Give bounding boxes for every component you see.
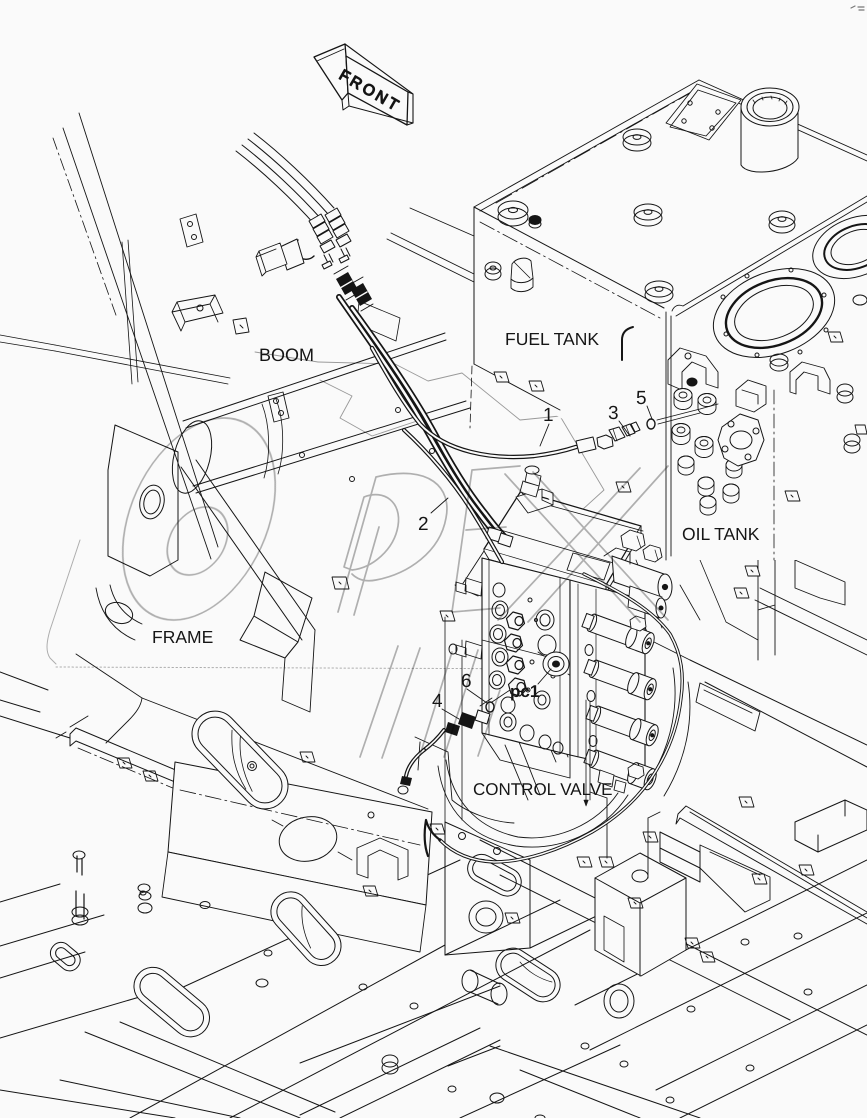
svg-text:4: 4 — [432, 691, 443, 712]
svg-text:1: 1 — [543, 405, 554, 426]
svg-text:pc1: pc1 — [510, 682, 539, 701]
svg-text:CONTROL VALVE: CONTROL VALVE — [473, 780, 613, 799]
svg-text:FRAME: FRAME — [152, 627, 213, 647]
svg-text:6: 6 — [461, 671, 472, 692]
svg-text:5: 5 — [636, 388, 647, 409]
svg-text:FUEL TANK: FUEL TANK — [505, 329, 599, 349]
svg-text:BOOM: BOOM — [259, 345, 314, 365]
svg-text:OIL TANK: OIL TANK — [682, 524, 760, 544]
svg-text:3: 3 — [608, 403, 619, 424]
svg-text:2: 2 — [418, 514, 429, 535]
